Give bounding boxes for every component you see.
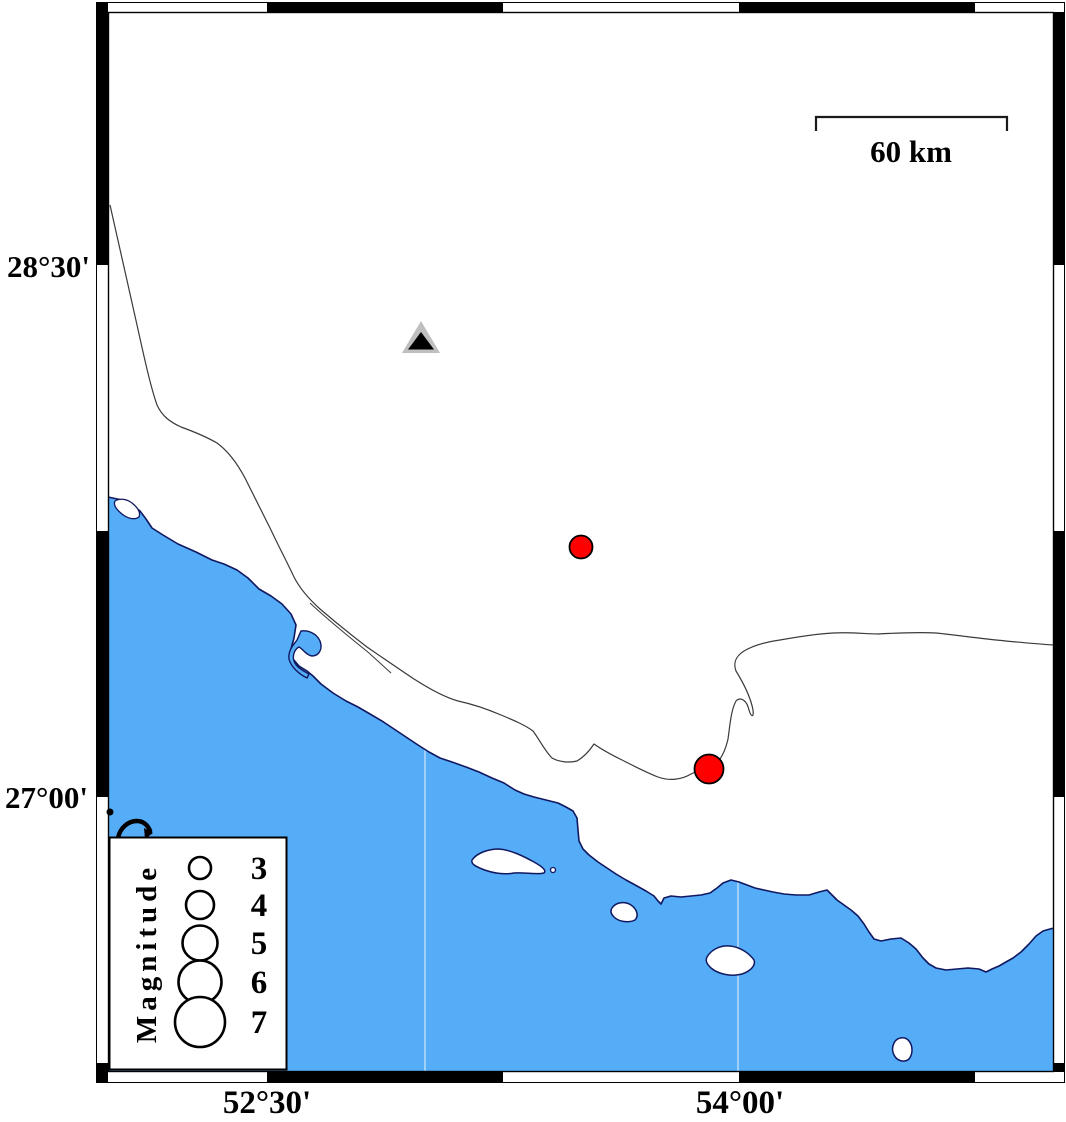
map-canvas: 60 km 28°30' 27°00' 52°30' 54°00' Magnit… (0, 0, 1066, 1122)
legend-magnitude-label: 7 (251, 1005, 268, 1041)
legend-magnitude-circle (183, 926, 218, 961)
lon-tick-label: 54°00' (696, 1085, 784, 1121)
map-page: 60 km 28°30' 27°00' 52°30' 54°00' Magnit… (0, 0, 1066, 1122)
legend-title: Magnitude (131, 863, 163, 1043)
earthquake-marker (570, 536, 593, 559)
lat-tick-label: 27°00' (5, 780, 88, 815)
legend-magnitude-label: 4 (251, 888, 268, 924)
legend-magnitude-circle (186, 891, 214, 919)
islet (551, 868, 556, 873)
island (893, 1038, 913, 1061)
partial-label-dot (107, 809, 114, 816)
lat-tick-label: 28°30' (7, 249, 90, 284)
legend-magnitude-label: 3 (251, 851, 268, 887)
lon-tick-label: 52°30' (223, 1085, 311, 1121)
earthquake-marker (695, 755, 724, 784)
scale-bar-label: 60 km (870, 134, 952, 169)
legend-magnitude-label: 5 (251, 926, 268, 962)
legend-magnitude-circle (175, 997, 225, 1047)
legend-magnitude-circle (189, 857, 211, 879)
legend-magnitude-label: 6 (251, 965, 268, 1001)
